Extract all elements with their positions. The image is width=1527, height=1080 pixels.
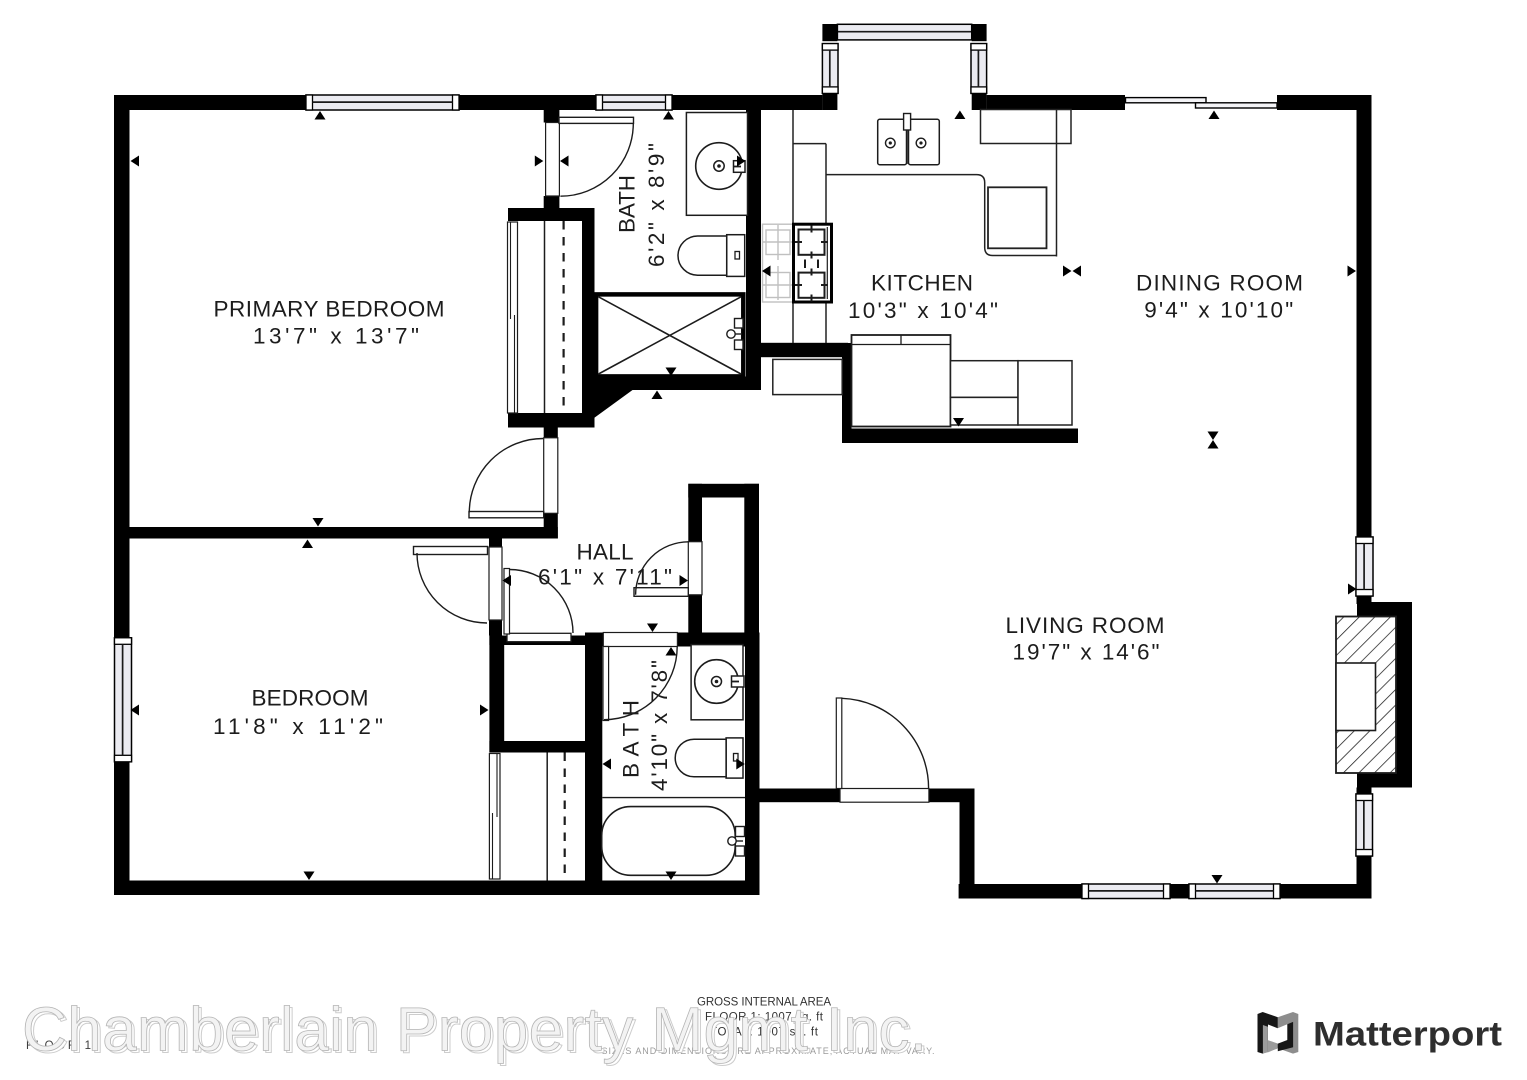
svg-text:13'7" x 13'7": 13'7" x 13'7" [253,324,419,349]
svg-text:BEDROOM: BEDROOM [252,686,369,711]
svg-text:LIVING ROOM: LIVING ROOM [1006,613,1165,638]
svg-text:BATH: BATH [615,175,640,233]
svg-text:PRIMARY BEDROOM: PRIMARY BEDROOM [214,297,445,322]
svg-text:11'8" x 11'2": 11'8" x 11'2" [213,714,383,739]
svg-text:10'3" x 10'4": 10'3" x 10'4" [848,298,998,323]
svg-text:Matterport: Matterport [1313,1016,1503,1054]
svg-text:KITCHEN: KITCHEN [871,271,973,296]
svg-text:19'7" x 14'6": 19'7" x 14'6" [1013,640,1160,665]
svg-text:6'2" x 8'9": 6'2" x 8'9" [644,143,669,267]
svg-text:Chamberlain Property Mgmt Inc.: Chamberlain Property Mgmt Inc. [22,996,927,1065]
svg-text:HALL: HALL [577,540,634,565]
svg-text:DINING ROOM: DINING ROOM [1136,271,1303,296]
